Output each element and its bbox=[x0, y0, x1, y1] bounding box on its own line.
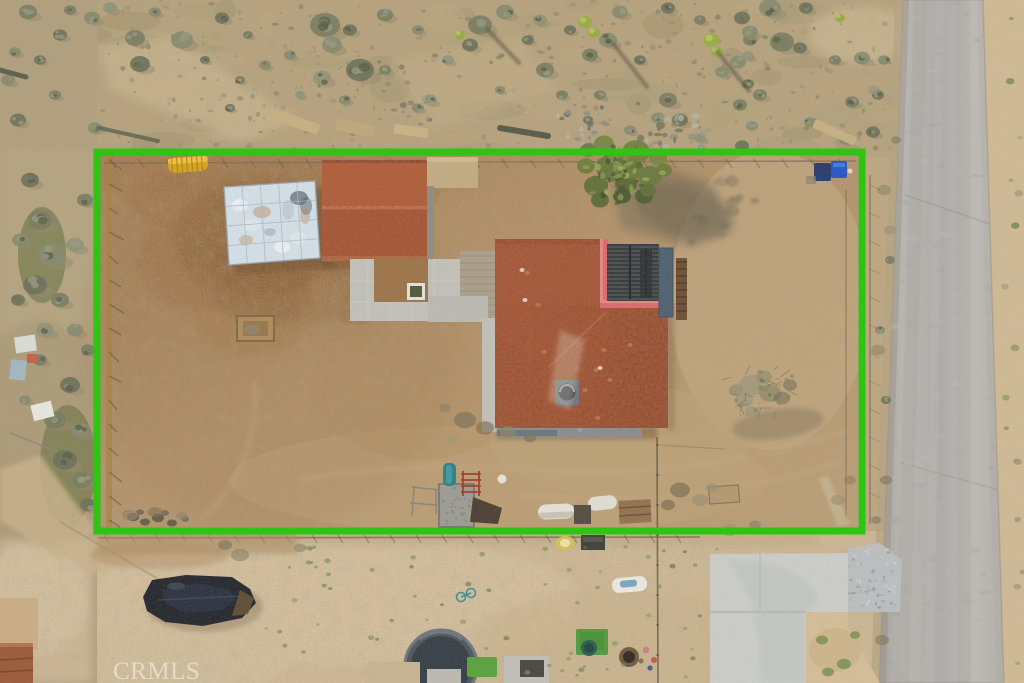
svg-text:CRMLS: CRMLS bbox=[113, 658, 200, 683]
